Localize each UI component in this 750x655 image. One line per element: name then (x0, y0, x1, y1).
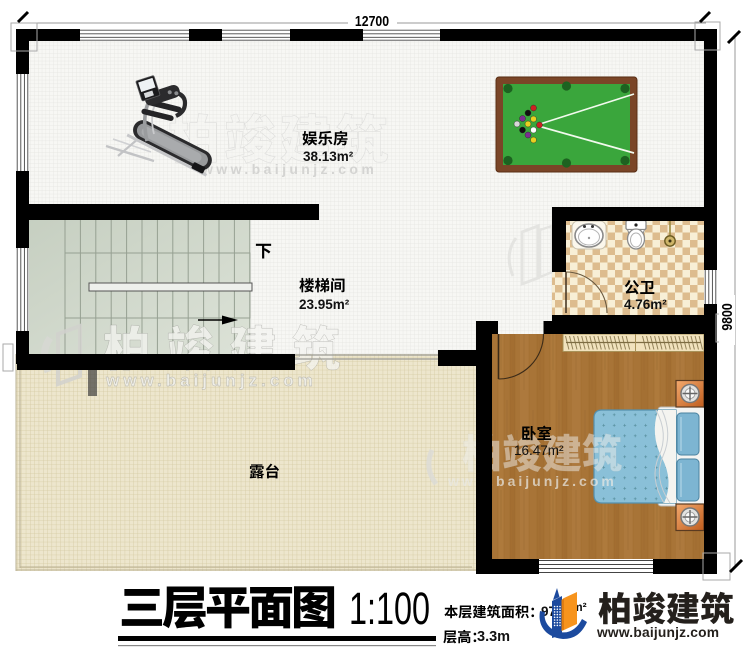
svg-text:23.95m²: 23.95m² (299, 297, 350, 312)
svg-text:12700: 12700 (355, 13, 390, 29)
svg-text:www.baijunjz.com: www.baijunjz.com (105, 371, 317, 390)
svg-text:4.76m²: 4.76m² (624, 297, 667, 312)
svg-text:16.47m²: 16.47m² (514, 443, 564, 458)
svg-text:3.3m: 3.3m (477, 629, 510, 645)
svg-text:9800: 9800 (719, 303, 735, 331)
svg-text:www.baijunjz.com: www.baijunjz.com (447, 473, 617, 489)
svg-text:38.13m²: 38.13m² (303, 149, 354, 164)
svg-text:1:100: 1:100 (349, 585, 430, 634)
svg-text:www.baijunjz.com: www.baijunjz.com (596, 625, 719, 640)
